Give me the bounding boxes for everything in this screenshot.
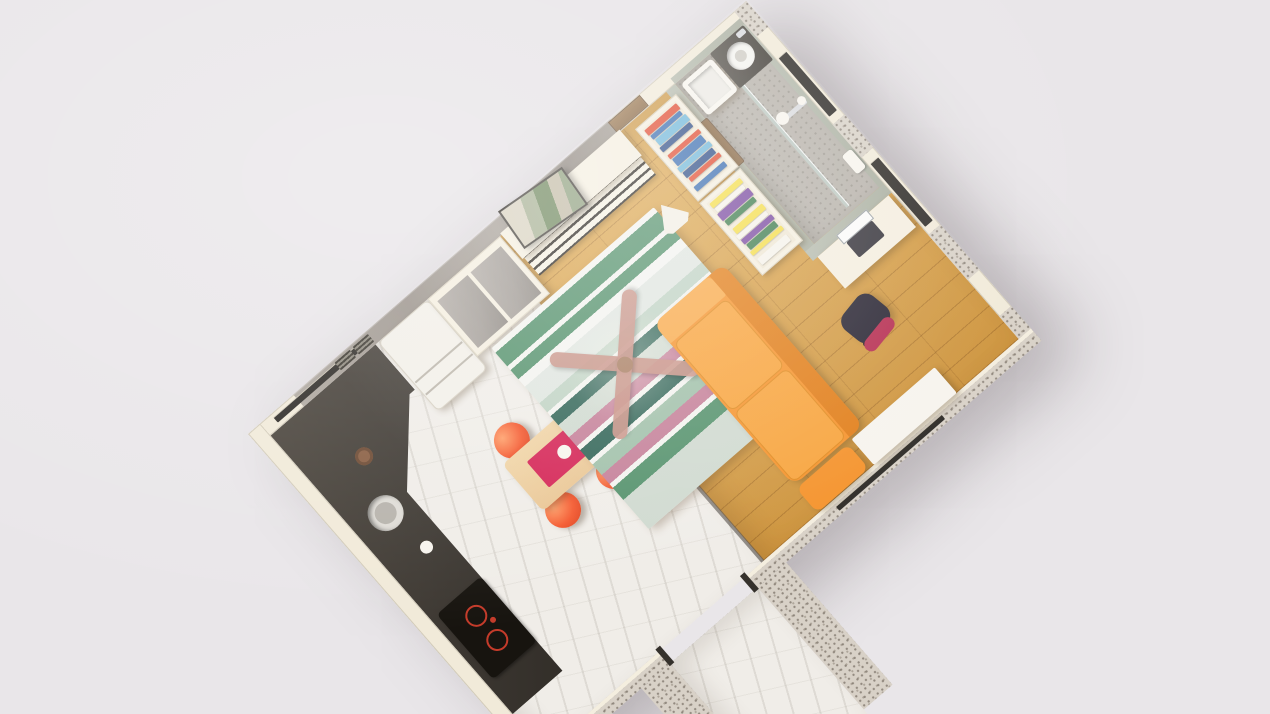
apartment-floorplan — [248, 1, 1041, 714]
render-canvas — [0, 0, 1270, 714]
